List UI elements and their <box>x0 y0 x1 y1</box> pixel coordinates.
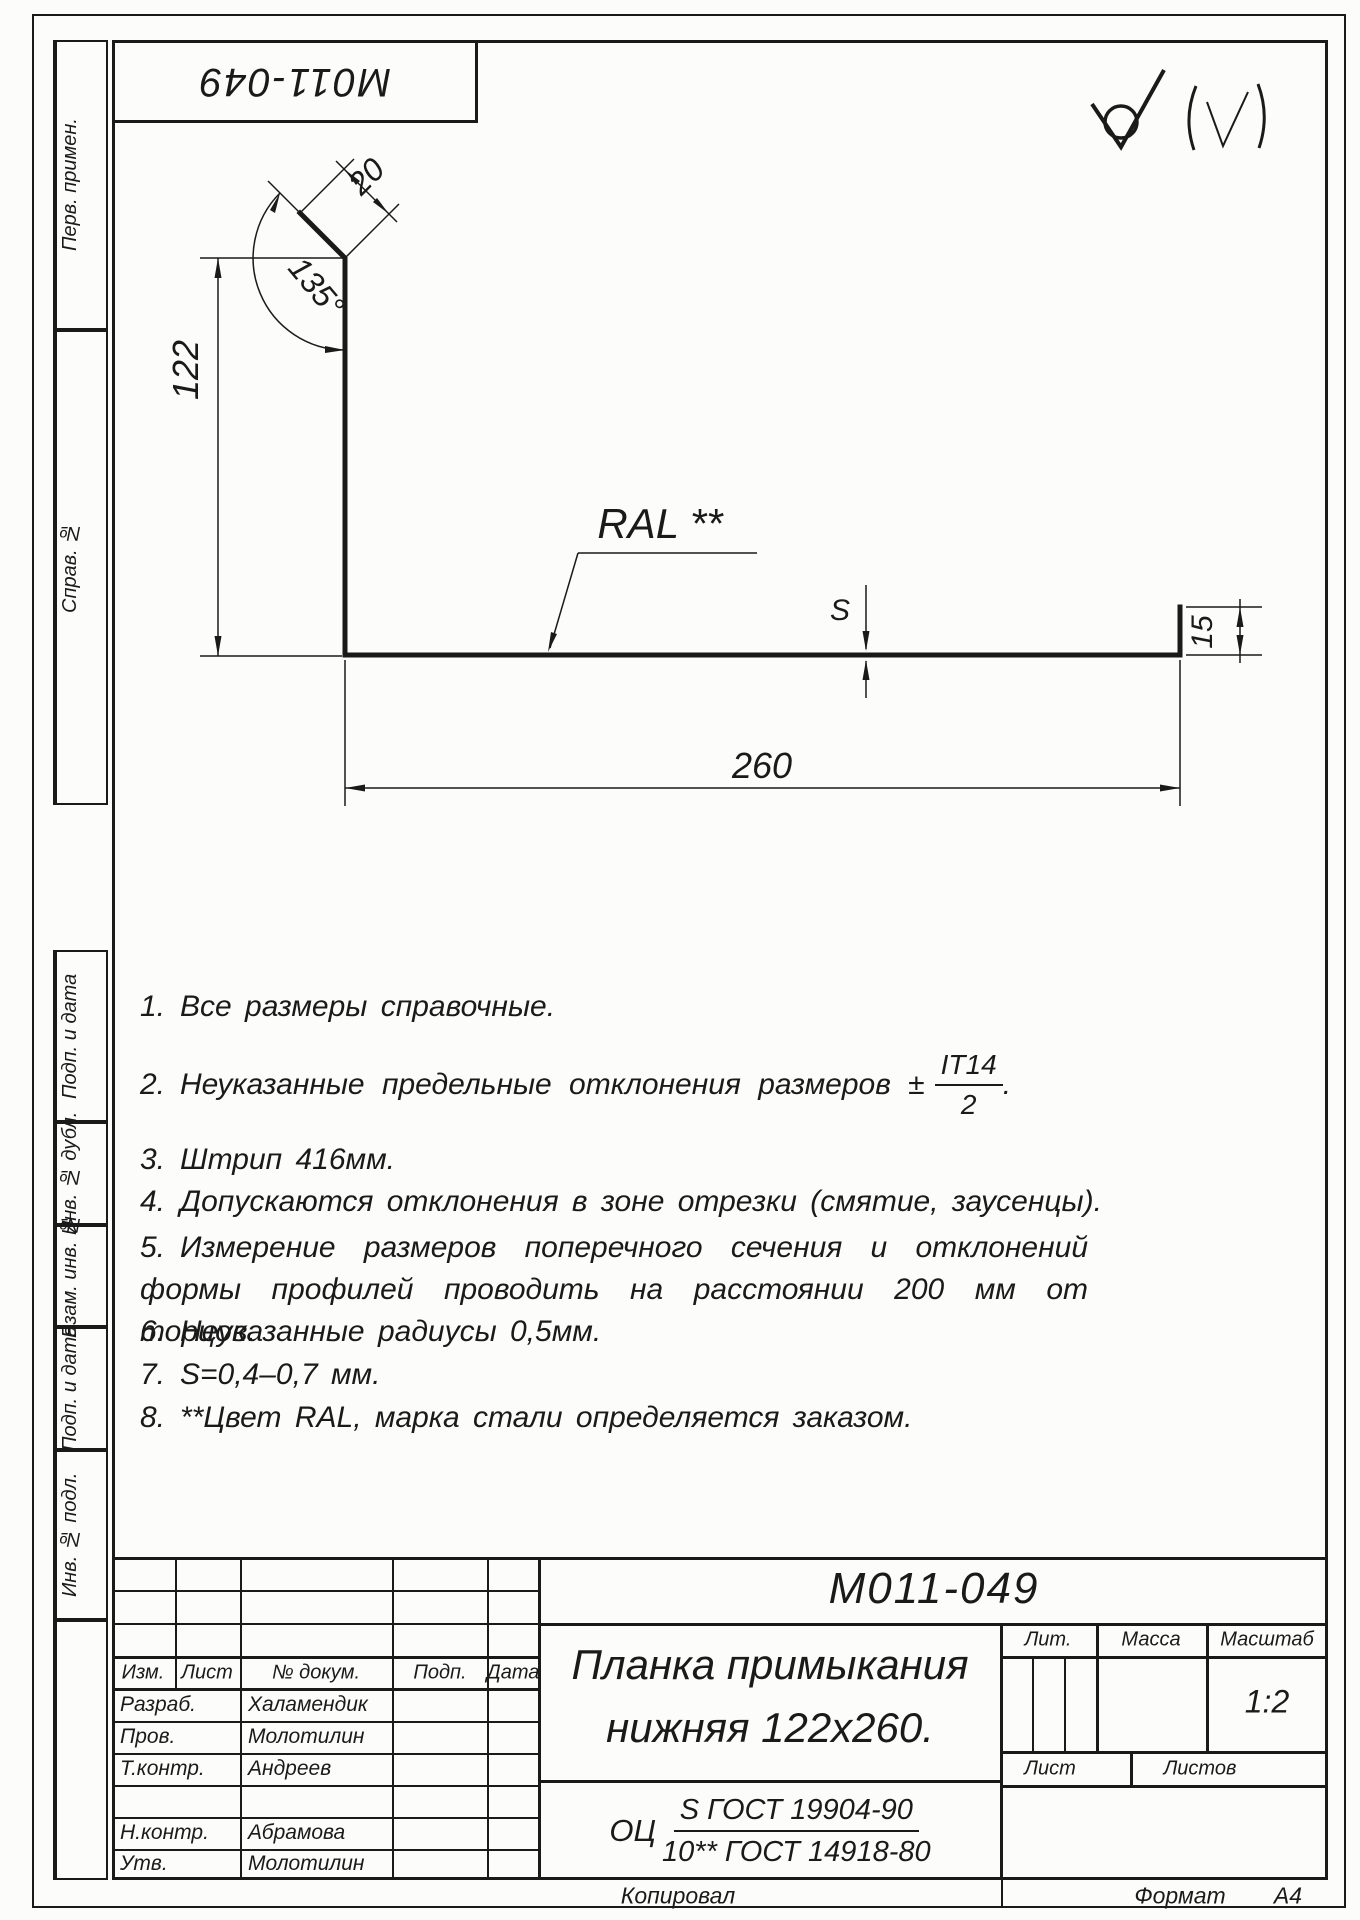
header-izm: Изм. <box>122 1662 165 1685</box>
massa-label: Масса <box>1121 1629 1180 1652</box>
note-line: 8.**Цвет RAL, марка стали определяется з… <box>140 1401 912 1435</box>
dim-length-label: 260 <box>731 745 792 786</box>
side-col-sprav-no: Справ. № <box>53 330 108 805</box>
name-razrab: Халамендик <box>248 1693 368 1717</box>
profile-outline <box>300 213 1180 655</box>
header-list: Лист <box>181 1662 233 1685</box>
role-utv: Утв. <box>120 1852 168 1876</box>
header-num-doc: № докум. <box>272 1662 360 1685</box>
kopiroval-label: Копировал <box>621 1883 735 1910</box>
format-value: A4 <box>1274 1883 1302 1910</box>
dim-angle-label: 135° <box>281 250 351 324</box>
dimension-arrows <box>215 169 1244 792</box>
paren-open-icon <box>1189 86 1196 150</box>
format-label: Формат <box>1134 1883 1225 1910</box>
list-label: Лист <box>1024 1758 1076 1781</box>
side-col-vzam-inv: Взам. инв. № <box>53 1225 108 1327</box>
dim-height-label: 122 <box>165 340 206 400</box>
name-nkontr: Абрамова <box>248 1821 345 1845</box>
name-utv: Молотилин <box>248 1852 364 1876</box>
listov-label: Листов <box>1164 1758 1237 1781</box>
check-icon <box>1207 92 1248 146</box>
note-line: 1.Все размеры справочные. <box>140 990 555 1024</box>
role-nkontr: Н.контр. <box>120 1821 209 1845</box>
side-col-label: Справ. № <box>55 332 84 803</box>
name-prov: Молотилин <box>248 1725 364 1749</box>
role-razrab: Разраб. <box>120 1693 196 1717</box>
material-fraction: S ГОСТ 19904-90 10** ГОСТ 14918-80 <box>662 1792 931 1870</box>
material-prefix: ОЦ <box>609 1813 656 1849</box>
name-tkontr: Андреев <box>248 1757 331 1781</box>
thickness-label: S <box>830 594 850 627</box>
header-podp: Подп. <box>413 1662 466 1685</box>
side-col-label: Взам. инв. № <box>55 1227 84 1325</box>
scale-value: 1:2 <box>1245 1684 1289 1721</box>
note-line: 3.Штрип 416мм. <box>140 1143 395 1177</box>
side-col-label: Инв. № подл. <box>55 1452 84 1618</box>
part-name-line2: нижняя 122x260. <box>606 1704 934 1752</box>
drawing-sheet: M011-049 Перв. примен. Справ. № Подп. и … <box>0 0 1360 1920</box>
side-col-label: Перв. примен. <box>55 42 84 328</box>
side-col-label: Инв. № дубл. <box>55 1124 84 1223</box>
side-col-label: Подп. и дата <box>55 1329 84 1448</box>
role-tkontr: Т.контр. <box>120 1757 205 1781</box>
lit-label: Лит. <box>1025 1629 1072 1652</box>
dimension-labels: 122 20 135° 260 15 S RAL ** <box>165 151 1219 786</box>
dim-lip-label: 15 <box>1186 615 1219 649</box>
coating-label: RAL ** <box>597 500 724 547</box>
note-line: 2.Неуказанные предельные отклонения разм… <box>140 1048 1011 1122</box>
header-data: Дата <box>487 1662 540 1685</box>
side-col-label: Подп. и дата <box>55 952 84 1120</box>
masshtab-label: Масштаб <box>1220 1629 1313 1652</box>
profile-drawing: 122 20 135° 260 15 S RAL ** <box>112 40 1328 950</box>
side-col-inv-dubl: Инв. № дубл. <box>53 1122 108 1225</box>
tolerance-fraction: IT142 <box>935 1048 1003 1122</box>
note-line: 7.S=0,4–0,7 мм. <box>140 1358 380 1392</box>
side-col-perv-primen: Перв. примен. <box>53 40 108 330</box>
material-cell: ОЦ S ГОСТ 19904-90 10** ГОСТ 14918-80 <box>545 1788 995 1874</box>
note-line: 6.Неуказанные радиусы 0,5мм. <box>140 1315 601 1349</box>
role-prov: Пров. <box>120 1725 175 1749</box>
side-col-empty <box>53 1620 108 1880</box>
side-col-podp-data-1: Подп. и дата <box>53 950 108 1122</box>
dim-flange-label: 20 <box>340 151 391 202</box>
side-col-label-empty <box>55 1622 84 1878</box>
paren-close-icon <box>1258 84 1264 148</box>
part-name-line1: Планка примыкания <box>571 1641 968 1689</box>
side-col-podp-data-2: Подп. и дата <box>53 1327 108 1450</box>
roughness-circle-icon <box>1105 106 1137 138</box>
note-line: 4.Допускаются отклонения в зоне отрезки … <box>140 1185 1102 1219</box>
designation: M011-049 <box>829 1564 1040 1614</box>
side-col-inv-podl: Инв. № подл. <box>53 1450 108 1620</box>
